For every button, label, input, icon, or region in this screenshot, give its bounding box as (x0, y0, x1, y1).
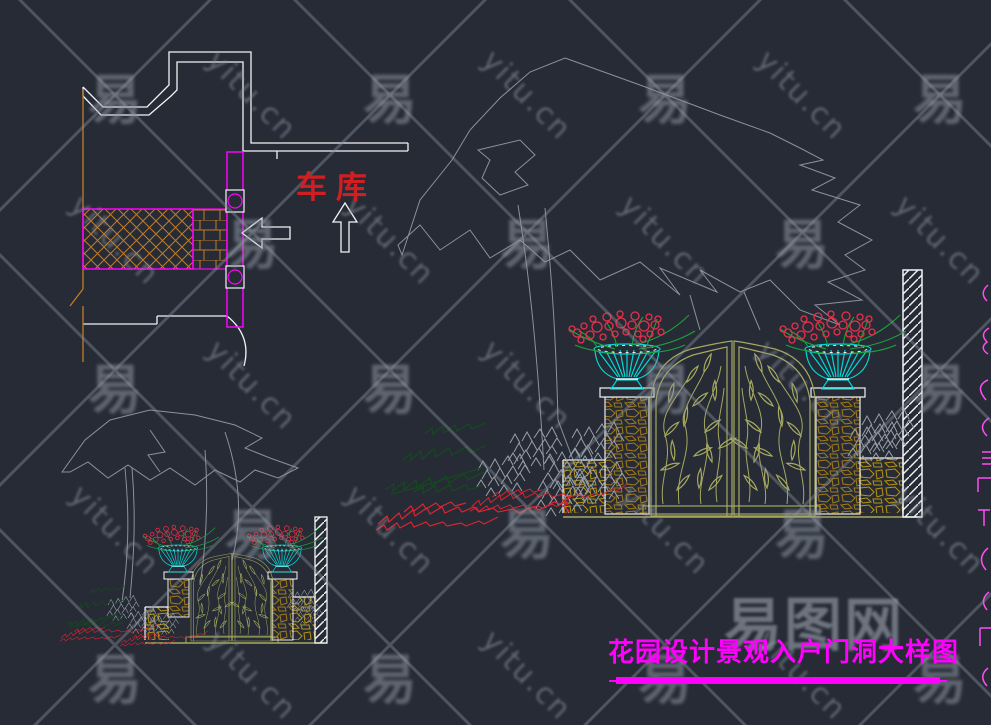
watermark-char: 易 (225, 491, 279, 570)
watermark-site: yitu.cn (613, 478, 717, 582)
title-underline-thick (616, 677, 940, 684)
watermark-site: yitu.cn (63, 478, 167, 582)
watermark-site: yitu.cn (888, 188, 991, 292)
watermark-site: yitu.cn (200, 623, 304, 725)
watermark-site: yitu.cn (750, 333, 854, 437)
watermark-char: 易 (775, 491, 829, 570)
watermark-site: yitu.cn (200, 43, 304, 147)
watermark-char: 易 (775, 201, 829, 280)
watermark-site: yitu.cn (750, 43, 854, 147)
watermark-char: 易 (500, 201, 554, 280)
watermark-char: 易 (363, 636, 417, 715)
watermark-site: yitu.cn (475, 43, 579, 147)
watermark-char: 易 (363, 346, 417, 425)
watermark-site: yitu.cn (475, 333, 579, 437)
watermark-char: 易 (638, 346, 692, 425)
watermark-site: yitu.cn (338, 478, 442, 582)
watermark-char: 易 (638, 56, 692, 135)
watermark-char: 易 (913, 346, 967, 425)
watermark-char: 易 (363, 56, 417, 135)
watermark-char: 易 (913, 56, 967, 135)
watermark-site: yitu.cn (888, 478, 991, 582)
watermark-site: yitu.cn (200, 333, 304, 437)
watermark-char: 易 (500, 491, 554, 570)
cad-viewport: 易易易易yitu.cnyitu.cnyitu.cn易易易yitu.cnyitu.… (0, 0, 991, 725)
watermark-site: yitu.cn (475, 623, 579, 725)
watermark-site: yitu.cn (63, 188, 167, 292)
drawing-title: 花园设计景观入户门洞大样图 (608, 632, 952, 669)
watermark-site: yitu.cn (613, 188, 717, 292)
watermark-char: 易 (225, 201, 279, 280)
watermark-char: 易 (88, 636, 142, 715)
garage-label: 车库 (296, 162, 376, 207)
watermark-char: 易 (88, 56, 142, 135)
watermark-char: 易 (88, 346, 142, 425)
